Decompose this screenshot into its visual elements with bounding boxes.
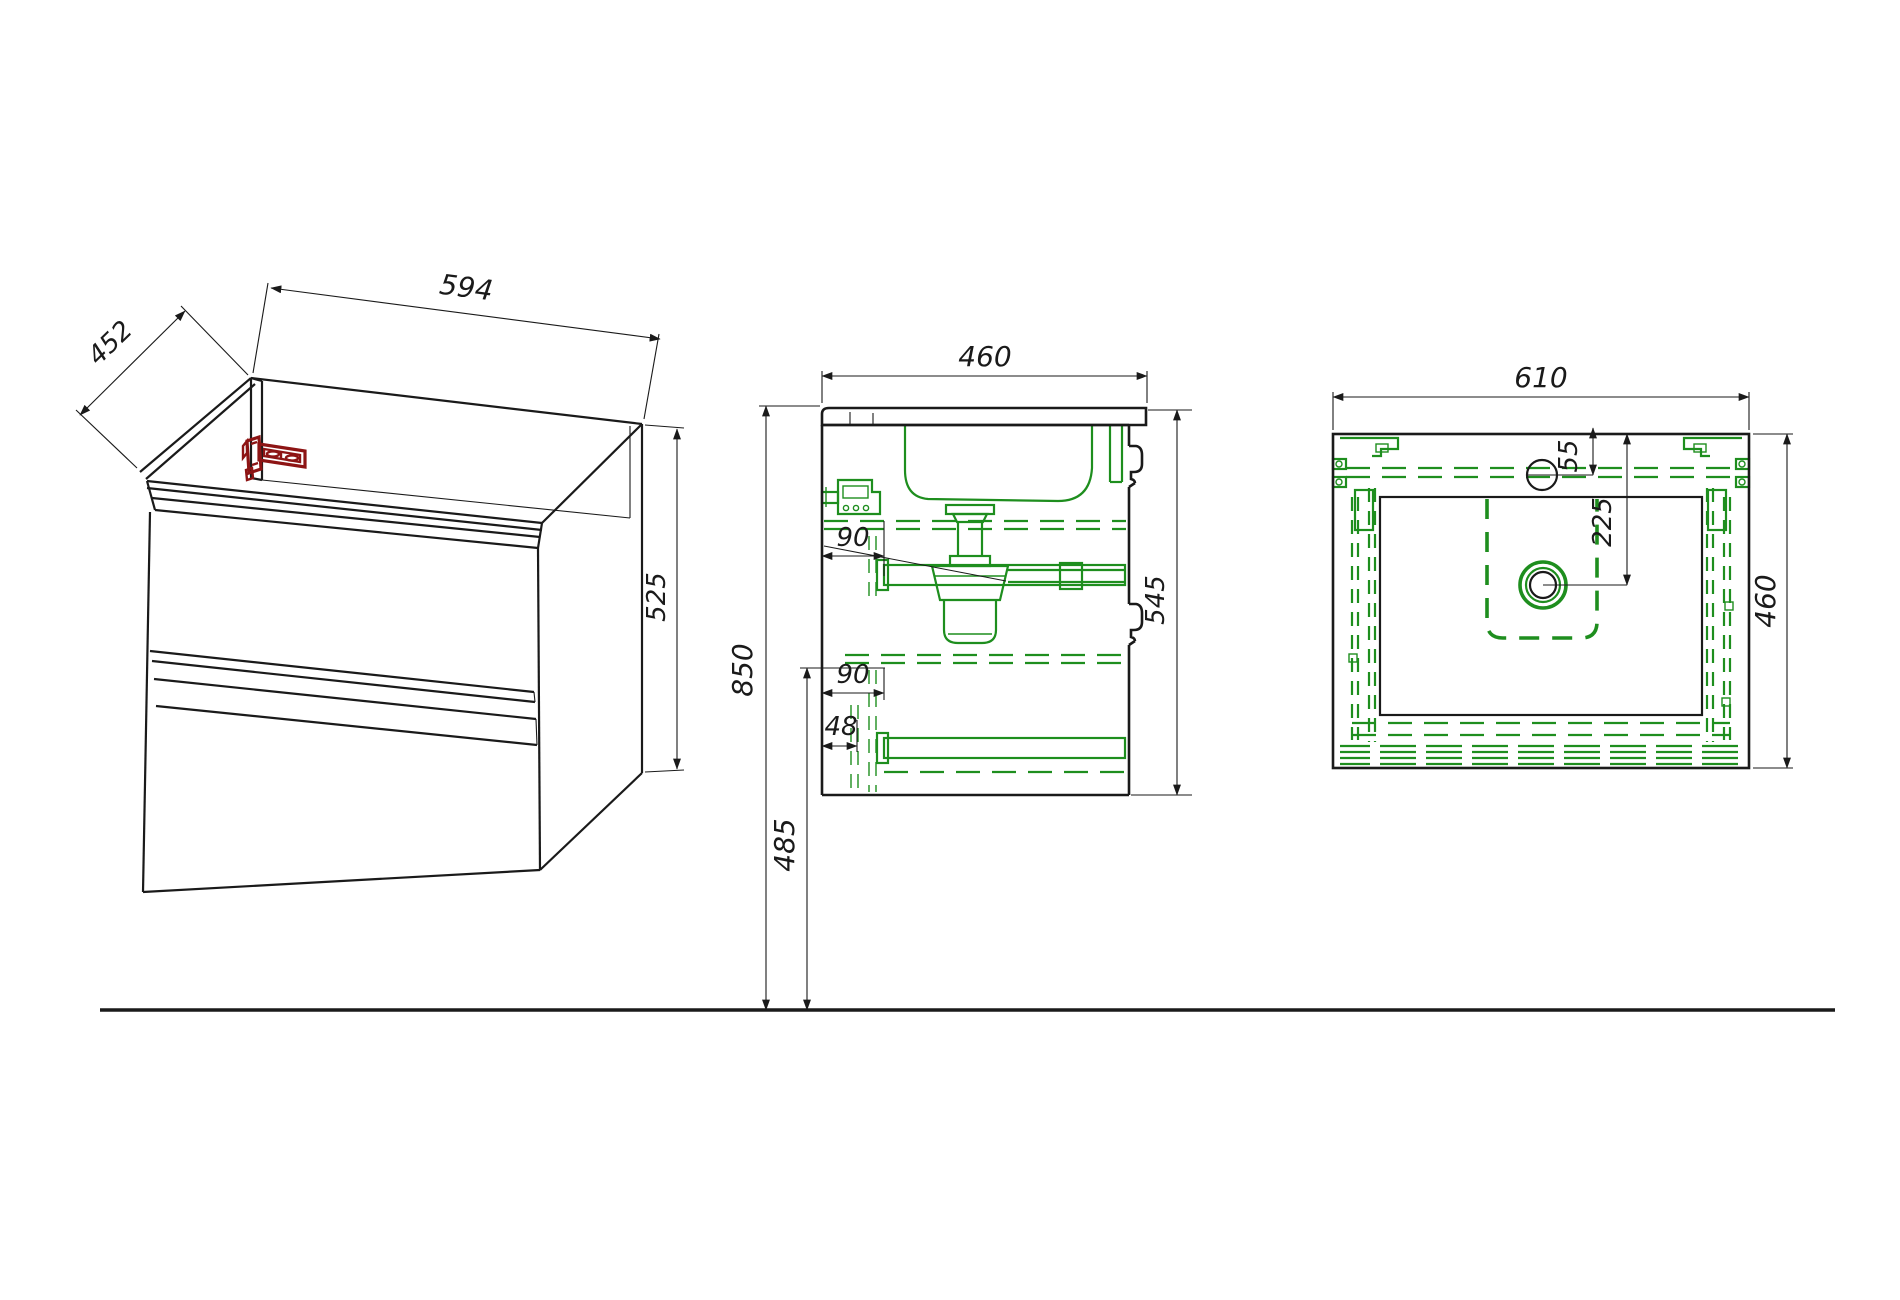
mounting-bracket-side <box>822 480 880 514</box>
dim-label-225: 225 <box>1588 497 1618 547</box>
dim-floor-to-bottom: 485 <box>768 668 807 1010</box>
dim-iso-width: 594 <box>253 268 660 419</box>
side-section-view: 460 545 90 90 48 850 <box>726 340 1192 1010</box>
dim-iso-depth: 452 <box>76 306 248 468</box>
dim-label-485: 485 <box>768 818 801 871</box>
dim-label-460-side: 460 <box>958 340 1011 373</box>
corner-bracket-right <box>1684 438 1749 487</box>
dim-slide-setback-lower: 90 <box>800 660 885 693</box>
dim-label-850: 850 <box>726 643 759 696</box>
siphon-trap <box>932 505 1125 643</box>
dim-label-90-lower: 90 <box>836 660 869 690</box>
dim-floor-to-top: 850 <box>726 406 820 1010</box>
bottom-hatch-band <box>1340 742 1744 767</box>
dim-top-width: 610 <box>1333 361 1749 430</box>
dim-label-90-upper: 90 <box>836 523 869 553</box>
corner-bracket-left <box>1333 438 1398 487</box>
drawer-slide-lower <box>877 733 1125 763</box>
technical-drawing: 452 594 525 <box>0 0 1900 1300</box>
drawer-fronts <box>150 651 537 745</box>
dim-front-offset: 48 <box>822 712 858 746</box>
dim-label-594: 594 <box>438 268 495 308</box>
drawing-canvas: 452 594 525 <box>0 0 1900 1300</box>
dim-top-depth: 460 <box>1749 434 1793 768</box>
drawer-slide-upper <box>877 560 1125 590</box>
dim-label-525: 525 <box>642 572 672 622</box>
top-view: 610 460 55 225 <box>1333 361 1793 768</box>
hidden-drawer-lines <box>824 521 1126 792</box>
dim-label-545: 545 <box>1141 575 1171 625</box>
wall-mount-bracket-red <box>243 437 305 480</box>
dim-side-depth: 460 <box>822 340 1147 403</box>
cabinet-outline <box>140 378 642 892</box>
dim-iso-height: 525 <box>642 425 684 772</box>
isometric-view: 452 594 525 <box>76 268 684 892</box>
basin-profile <box>905 425 1122 501</box>
dim-label-55: 55 <box>1554 439 1584 472</box>
dim-label-610: 610 <box>1514 361 1567 394</box>
dim-label-48: 48 <box>824 712 857 742</box>
dim-label-452: 452 <box>82 315 139 371</box>
dim-label-460-top: 460 <box>1749 574 1782 627</box>
